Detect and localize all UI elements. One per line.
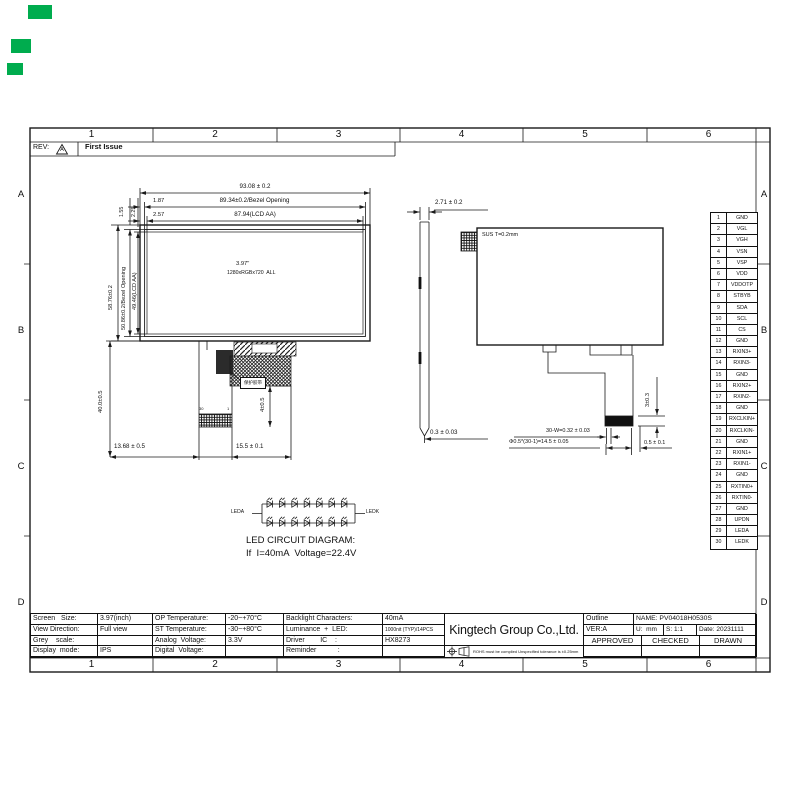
projection-symbol	[446, 646, 472, 657]
rev-triangle-letter: A	[57, 147, 68, 153]
spec-value	[383, 646, 445, 657]
pin-number: 3	[711, 235, 727, 245]
pin-row: 21GND	[711, 437, 757, 448]
led-cathode-label: LEDK	[366, 510, 379, 516]
frame-row-b-left: B	[15, 326, 27, 336]
pin-name: CS	[727, 325, 757, 335]
pin-name: GND	[727, 437, 757, 447]
pin-number: 8	[711, 291, 727, 301]
pin-table: 1GND2VGL3VGH4VSN5VSP6VDD7VDDOTP8STBYB9SD…	[710, 212, 758, 550]
frame-col-3-top: 3	[329, 129, 349, 140]
pin-name: VGH	[727, 235, 757, 245]
pin-row: 1GND	[711, 213, 757, 224]
frame-row-d-right: D	[758, 598, 770, 608]
pin-row: 13RXIN3+	[711, 347, 757, 358]
pin-name: GND	[727, 504, 757, 514]
pin-row: 25RXTIN0+	[711, 482, 757, 493]
pin-number: 25	[711, 482, 727, 492]
pin-name: UPDN	[727, 515, 757, 525]
pin-number: 2	[711, 224, 727, 234]
pin-name: GND	[727, 336, 757, 346]
pin-name: STBYB	[727, 291, 757, 301]
rohs-strip: ROHS must be complied Unspecified tolera…	[445, 646, 584, 657]
pin-number: 6	[711, 269, 727, 279]
frame-row-a-left: A	[15, 190, 27, 200]
front-resolution-label: 1280xRGBx720 ALL	[227, 271, 275, 277]
pin-row: 3VGH	[711, 235, 757, 246]
pin-row: 14RXIN3-	[711, 358, 757, 369]
pin-row: 2VGL	[711, 224, 757, 235]
front-dim-fpc-left: 13.68 ± 0.5	[114, 444, 145, 451]
pin-number: 1	[711, 213, 727, 223]
pin-name: GND	[727, 470, 757, 480]
tape-callout: 保护胶带	[240, 377, 266, 389]
pin-number: 11	[711, 325, 727, 335]
company-name: Kingtech Group Co.,Ltd.	[445, 614, 584, 646]
pin-number: 29	[711, 526, 727, 536]
frame-col-2-top: 2	[205, 129, 225, 140]
pin-name: VDDOTP	[727, 280, 757, 290]
led-diagram-condition: If I=40mA Voltage=22.4V	[246, 549, 356, 559]
spec-value: Full view	[98, 625, 153, 636]
front-dim-fpc-right: 15.5 ± 0.1	[236, 444, 263, 451]
pin-row: 6VDD	[711, 269, 757, 280]
pin-number: 9	[711, 303, 727, 313]
pin-row: 10SCL	[711, 314, 757, 325]
frame-row-a-right: A	[758, 190, 770, 200]
spec-label: Luminance + LED:	[284, 625, 383, 636]
front-dim-width-outline: 93.08 ± 0.2	[140, 184, 370, 191]
led-symbol	[292, 517, 298, 527]
frame-col-5-top: 5	[575, 129, 595, 140]
led-symbol	[267, 498, 273, 508]
pin-number: 19	[711, 414, 727, 424]
front-dim-height-outline: 58.76±0.2	[109, 285, 115, 310]
frame-row-c-right: C	[758, 462, 770, 472]
spec-value: IPS	[98, 646, 153, 657]
led-symbol	[304, 517, 310, 527]
led-symbol	[329, 517, 335, 527]
front-dim-width-bezel: 89.34±0.2/Bezel Opening	[144, 198, 365, 205]
pin-name: RXIN2-	[727, 392, 757, 402]
side-dim-thickness: 2.71 ± 0.2	[435, 200, 462, 207]
drawing-geometry	[0, 0, 800, 800]
drawing-name: NAME: PV04018H0530S	[634, 614, 757, 625]
pin-name: LEDK	[727, 537, 757, 548]
pin-number: 23	[711, 459, 727, 469]
spec-label: Grey scale:	[31, 636, 98, 647]
led-symbol	[304, 498, 310, 508]
pin-row: 27GND	[711, 504, 757, 515]
pin-row: 30LEDK	[711, 537, 757, 548]
frame-col-2-bottom: 2	[205, 659, 225, 670]
spec-label: Screen Size:	[31, 614, 98, 625]
spec-label: Analog Voltage:	[153, 636, 226, 647]
pin-name: GND	[727, 403, 757, 413]
connector-pin-1: 1	[227, 407, 229, 411]
front-dim-width-aa: 87.94(LCD AA)	[147, 212, 363, 219]
pin-number: 16	[711, 381, 727, 391]
pin-row: 23RXIN1-	[711, 459, 757, 470]
led-diagram-title: LED CIRCUIT DIAGRAM:	[246, 536, 355, 546]
drawing-date: Date: 20231111	[697, 625, 757, 636]
spec-value: HX8273	[383, 636, 445, 647]
led-symbol	[279, 517, 285, 527]
frame-row-d-left: D	[15, 598, 27, 608]
pin-number: 7	[711, 280, 727, 290]
spec-label: Digital Voltage:	[153, 646, 226, 657]
led-circuit	[252, 498, 365, 527]
rear-sus-label: SUS T=0.2mm	[482, 232, 518, 238]
checked-label: CHECKED	[642, 636, 700, 647]
spec-label: Driver IC :	[284, 636, 383, 647]
pin-row: 19RXCLKIN+	[711, 414, 757, 425]
pin-name: RXCLKIN-	[727, 426, 757, 436]
pin-number: 13	[711, 347, 727, 357]
front-dim-height-aa: 49.46(LCD AA)	[133, 272, 139, 310]
front-dim-bezel-left: 1.87	[153, 198, 164, 204]
spec-label: ST Temperature:	[153, 625, 226, 636]
frame-col-4-top: 4	[452, 129, 472, 140]
pin-number: 26	[711, 493, 727, 503]
rev-note: First Issue	[85, 143, 123, 151]
pin-row: 9SDA	[711, 303, 757, 314]
green-mark-3	[7, 63, 23, 75]
pin-name: RXIN3-	[727, 358, 757, 368]
led-symbol	[267, 517, 273, 527]
pin-name: RXIN3+	[727, 347, 757, 357]
drawing-version: VER:A	[584, 625, 634, 636]
front-dim-fpc-length: 40.0±0.5	[99, 390, 105, 413]
led-symbol	[329, 498, 335, 508]
pin-number: 24	[711, 470, 727, 480]
pin-number: 28	[711, 515, 727, 525]
pin-row: 22RXIN1+	[711, 448, 757, 459]
front-size-label: 3.97"	[236, 261, 249, 267]
pin-name: SDA	[727, 303, 757, 313]
rear-dim-pin-width: 30-W=0.32 ± 0.03	[546, 428, 590, 434]
pin-row: 16RXIN2+	[711, 381, 757, 392]
spec-value: 40mA	[383, 614, 445, 625]
pin-name: VSN	[727, 247, 757, 257]
drawn-label: DRAWN	[700, 636, 757, 647]
pin-row: 26RXTIN0-	[711, 493, 757, 504]
approved-label: APPROVED	[584, 636, 642, 647]
frame-col-4-bottom: 4	[452, 659, 472, 670]
front-dim-aa-left: 2.57	[153, 212, 164, 218]
outline-label: Outline	[584, 614, 634, 625]
pin-name: RXIN1+	[727, 448, 757, 458]
frame-col-1-top: 1	[82, 129, 102, 140]
spec-value	[98, 636, 153, 647]
spec-value: -30~+80°C	[226, 625, 284, 636]
rear-view-outline	[461, 228, 672, 455]
rohs-note: ROHS must be complied Unspecified tolera…	[473, 649, 578, 654]
pin-name: RXIN1-	[727, 459, 757, 469]
frame-col-5-bottom: 5	[575, 659, 595, 670]
front-dim-aa-top: 2.25	[132, 207, 137, 217]
led-symbol	[292, 498, 298, 508]
pin-number: 22	[711, 448, 727, 458]
approved-value	[584, 646, 642, 657]
pin-row: 8STBYB	[711, 291, 757, 302]
spec-value: -20~+70°C	[226, 614, 284, 625]
frame-row-c-left: C	[15, 462, 27, 472]
pin-name: VDD	[727, 269, 757, 279]
front-dim-fpc-tail: 4±0.5	[261, 398, 267, 412]
checked-value	[642, 646, 700, 657]
green-mark-1	[28, 5, 52, 19]
pin-name: SCL	[727, 314, 757, 324]
pin-row: 12GND	[711, 336, 757, 347]
drawn-value	[700, 646, 757, 657]
led-symbol	[317, 498, 323, 508]
pin-row: 5VSP	[711, 258, 757, 269]
pin-row: 18GND	[711, 403, 757, 414]
pin-row: 20RXCLKIN-	[711, 426, 757, 437]
pin-name: RXCLKIN+	[727, 414, 757, 424]
spec-value	[226, 646, 284, 657]
title-block: Screen Size: View Direction: Grey scale:…	[30, 613, 756, 658]
pin-number: 17	[711, 392, 727, 402]
pin-number: 4	[711, 247, 727, 257]
pin-number: 14	[711, 358, 727, 368]
pin-name: RXIN2+	[727, 381, 757, 391]
led-symbol	[341, 517, 347, 527]
front-dim-bezel-top: 1.55	[120, 207, 125, 217]
spec-label: Display mode:	[31, 646, 98, 657]
spec-label: Reminder :	[284, 646, 383, 657]
pin-number: 20	[711, 426, 727, 436]
pin-row: 15GND	[711, 370, 757, 381]
pin-name: LEDA	[727, 526, 757, 536]
pin-name: VSP	[727, 258, 757, 268]
drawing-sheet: 1 2 3 4 5 6 1 2 3 4 5 6 A B C D A B C D …	[0, 0, 800, 800]
rear-dim-connector-height: 3±0.3	[646, 393, 652, 407]
pin-name: RXTIN0-	[727, 493, 757, 503]
pin-name: GND	[727, 213, 757, 223]
spec-label: View Direction:	[31, 625, 98, 636]
pin-number: 5	[711, 258, 727, 268]
pin-number: 30	[711, 537, 727, 548]
spec-label: Backlight Characters:	[284, 614, 383, 625]
drawing-scale: S: 1:1	[664, 625, 697, 636]
frame-col-1-bottom: 1	[82, 659, 102, 670]
green-mark-2	[11, 39, 31, 53]
pin-row: 29LEDA	[711, 526, 757, 537]
rear-dim-pin-pitch: Φ0.5*(30-1)=14.5 ± 0.05	[509, 439, 569, 445]
pin-name: RXTIN0+	[727, 482, 757, 492]
led-symbol	[279, 498, 285, 508]
spec-value: 3.3V	[226, 636, 284, 647]
pin-row: 4VSN	[711, 247, 757, 258]
pin-number: 12	[711, 336, 727, 346]
side-dim-tape: 0.3 ± 0.03	[430, 430, 457, 437]
pin-name: GND	[727, 370, 757, 380]
frame-col-6-bottom: 6	[699, 659, 719, 670]
spec-value: 3.97(inch)	[98, 614, 153, 625]
led-anode-label: LEDA	[231, 510, 244, 516]
rear-dim-edge: 0.5 ± 0.1	[644, 440, 665, 446]
spec-value: 1000nit (TYP)/14PCS	[383, 625, 445, 636]
rev-label: REV:	[33, 144, 49, 152]
pin-row: 28UPDN	[711, 515, 757, 526]
led-symbol	[341, 498, 347, 508]
frame-col-3-bottom: 3	[329, 659, 349, 670]
pin-row: 7VDDOTP	[711, 280, 757, 291]
spec-label: OP Temperature:	[153, 614, 226, 625]
pin-row: 17RXIN2-	[711, 392, 757, 403]
pin-name: VGL	[727, 224, 757, 234]
frame-col-6-top: 6	[699, 129, 719, 140]
pin-number: 10	[711, 314, 727, 324]
pin-number: 21	[711, 437, 727, 447]
drawing-unit: U: mm	[634, 625, 664, 636]
frame-row-b-right: B	[758, 326, 770, 336]
led-symbol	[317, 517, 323, 527]
connector-pin-30: 30	[199, 407, 203, 411]
pin-number: 27	[711, 504, 727, 514]
pin-number: 15	[711, 370, 727, 380]
pin-number: 18	[711, 403, 727, 413]
pin-row: 11CS	[711, 325, 757, 336]
front-dim-height-bezel: 50.86±0.2/Bezel Opening	[122, 267, 128, 330]
pin-row: 24GND	[711, 470, 757, 481]
